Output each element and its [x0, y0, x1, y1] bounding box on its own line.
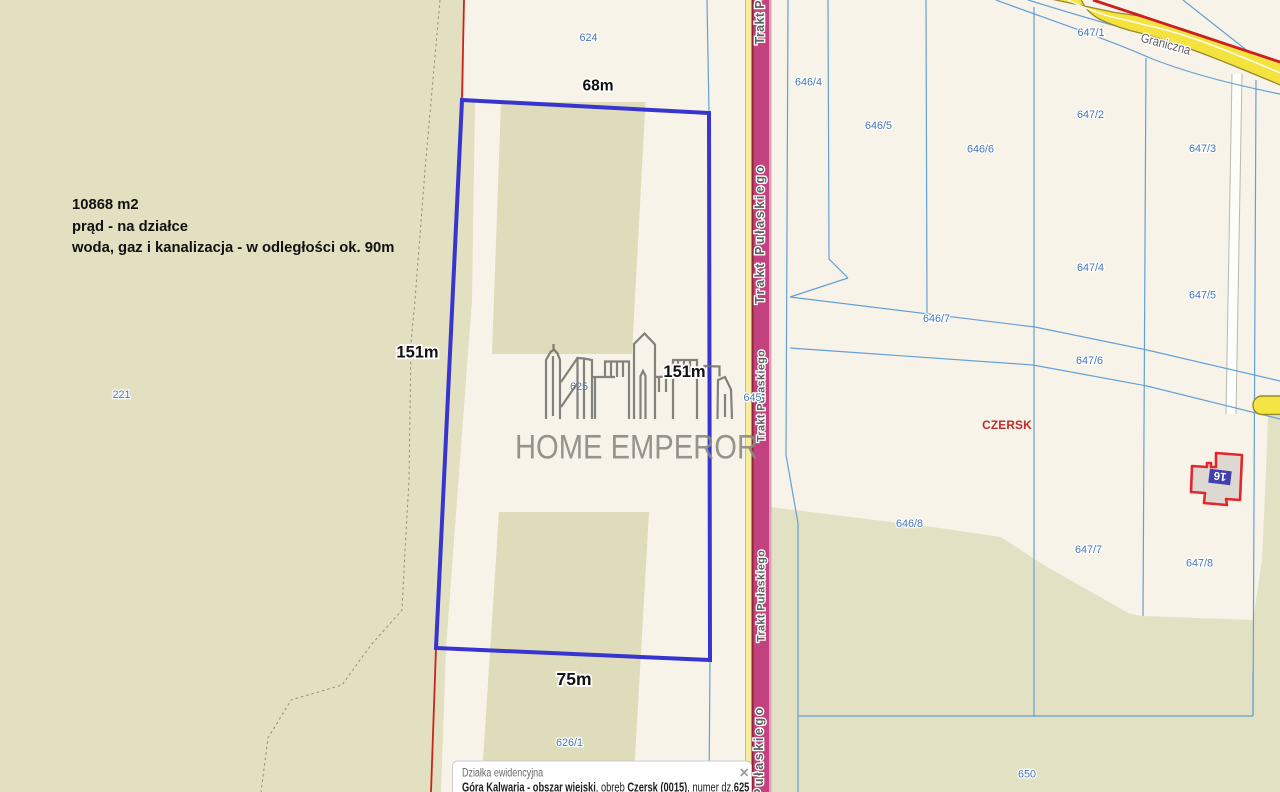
svg-text:Trakt Pułaskiego: Trakt Pułaskiego	[753, 163, 767, 304]
svg-text:646/8: 646/8	[896, 518, 923, 530]
svg-text:650: 650	[1018, 769, 1036, 781]
svg-text:647/6: 647/6	[1076, 355, 1103, 367]
svg-text:Trakt Pułaskiego: Trakt Pułaskiego	[756, 550, 768, 642]
svg-text:151m: 151m	[663, 363, 705, 381]
svg-text:626/1: 626/1	[556, 737, 583, 749]
svg-text:Trakt Pułaskiego: Trakt Pułaskiego	[753, 0, 767, 45]
svg-text:647/1: 647/1	[1077, 27, 1104, 39]
svg-text:647/8: 647/8	[1186, 558, 1213, 570]
svg-text:HOME EMPEROR: HOME EMPEROR	[515, 429, 758, 467]
svg-text:647/7: 647/7	[1075, 544, 1102, 556]
svg-text:647/3: 647/3	[1189, 143, 1216, 155]
svg-text:10868 m2: 10868 m2	[72, 197, 139, 213]
svg-text:Góra Kalwaria - obszar wiejski: Góra Kalwaria - obszar wiejski, obręb Cz…	[462, 781, 750, 792]
svg-text:prąd - na działce: prąd - na działce	[72, 219, 188, 235]
svg-text:Działka ewidencyjna: Działka ewidencyjna	[462, 768, 543, 780]
svg-text:✕: ✕	[739, 766, 749, 780]
svg-text:647/2: 647/2	[1077, 109, 1104, 121]
svg-text:647/4: 647/4	[1077, 262, 1104, 274]
svg-text:151m: 151m	[396, 344, 438, 362]
svg-text:646/7: 646/7	[923, 313, 950, 325]
svg-text:woda, gaz i kanalizacja - w od: woda, gaz i kanalizacja - w odległości o…	[71, 240, 394, 256]
svg-text:646/5: 646/5	[865, 120, 892, 132]
svg-text:645: 645	[743, 392, 761, 404]
svg-text:221: 221	[112, 389, 130, 401]
svg-text:646/6: 646/6	[967, 144, 994, 156]
svg-text:68m: 68m	[582, 78, 613, 95]
svg-text:624: 624	[579, 32, 597, 44]
svg-text:16: 16	[1213, 469, 1227, 482]
svg-text:CZERSK: CZERSK	[982, 418, 1032, 432]
svg-text:647/5: 647/5	[1189, 290, 1216, 302]
svg-text:Trakt Pułaskiego: Trakt Pułaskiego	[752, 705, 766, 792]
svg-text:646/4: 646/4	[795, 77, 822, 89]
svg-text:75m: 75m	[556, 669, 591, 689]
